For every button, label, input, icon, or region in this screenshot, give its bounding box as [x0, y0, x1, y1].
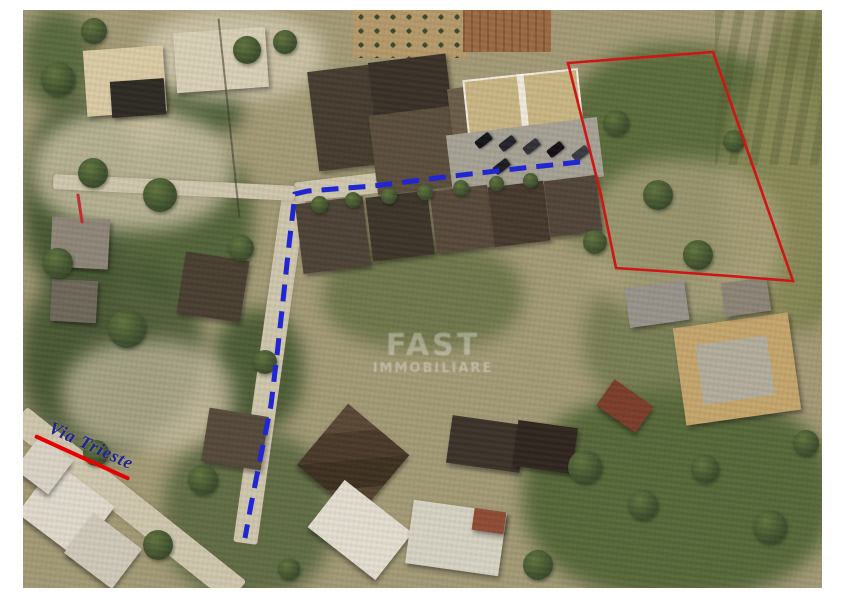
tree	[723, 130, 745, 152]
rust-roof	[472, 508, 507, 534]
watermark-line1: FAST	[348, 330, 518, 362]
house-roof	[201, 408, 269, 471]
tree	[233, 36, 261, 64]
tree	[143, 178, 177, 212]
white-border-frame: FAST IMMOBILIARE Via Trieste	[0, 0, 842, 595]
street-tree	[381, 188, 397, 204]
tree	[253, 350, 277, 374]
tree	[628, 490, 658, 520]
street-tree	[523, 173, 538, 188]
tree	[523, 550, 553, 580]
tree	[228, 235, 254, 261]
tree	[78, 158, 108, 188]
row-house-roof	[295, 196, 371, 274]
house-roof	[721, 277, 771, 317]
open-ground-blob	[33, 110, 233, 230]
tree	[278, 558, 300, 580]
tree	[81, 18, 107, 44]
tree	[188, 465, 218, 495]
farmhouse-courtyard	[695, 335, 775, 404]
tree	[683, 240, 713, 270]
house-roof	[177, 251, 250, 322]
row-house-roof	[365, 190, 434, 261]
tree	[43, 248, 73, 278]
street-tree	[453, 180, 469, 196]
tree	[568, 450, 602, 484]
tree	[793, 430, 819, 456]
house-roof	[625, 280, 690, 328]
tree	[273, 30, 297, 54]
street-tree	[311, 196, 328, 213]
house-roof	[50, 279, 98, 323]
street-tree	[345, 192, 361, 208]
tree	[108, 310, 146, 348]
tree	[143, 530, 173, 560]
orchard-field	[353, 10, 468, 58]
street-tree	[489, 176, 504, 191]
aerial-photo: FAST IMMOBILIARE Via Trieste	[23, 10, 822, 588]
tree	[603, 110, 629, 136]
vegetation-blob	[523, 390, 822, 588]
row-house-roof	[544, 175, 602, 237]
tree	[753, 510, 787, 544]
tree	[583, 230, 607, 254]
tree	[691, 455, 719, 483]
plowed-field	[463, 10, 551, 52]
villa-shadow-wing	[110, 78, 166, 118]
street-tree	[417, 184, 433, 200]
agency-watermark: FAST IMMOBILIARE	[348, 330, 518, 375]
watermark-line2: IMMOBILIARE	[348, 362, 518, 376]
tree	[643, 180, 673, 210]
tree	[41, 62, 75, 96]
